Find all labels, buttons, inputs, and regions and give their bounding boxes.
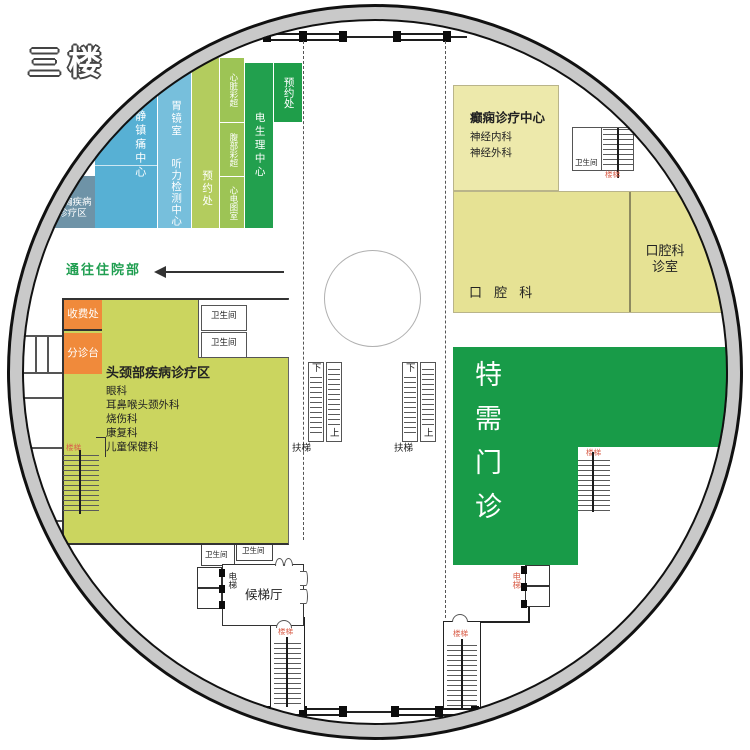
floor-title: 三楼 (28, 36, 108, 84)
building-inner-ring (22, 19, 728, 725)
floor-plan: 心胸疾病 诊疗区 镇静镇痛中心 胃镜室 听力检测中心 预约处 心脏彩超 腹部彩超… (0, 0, 750, 750)
